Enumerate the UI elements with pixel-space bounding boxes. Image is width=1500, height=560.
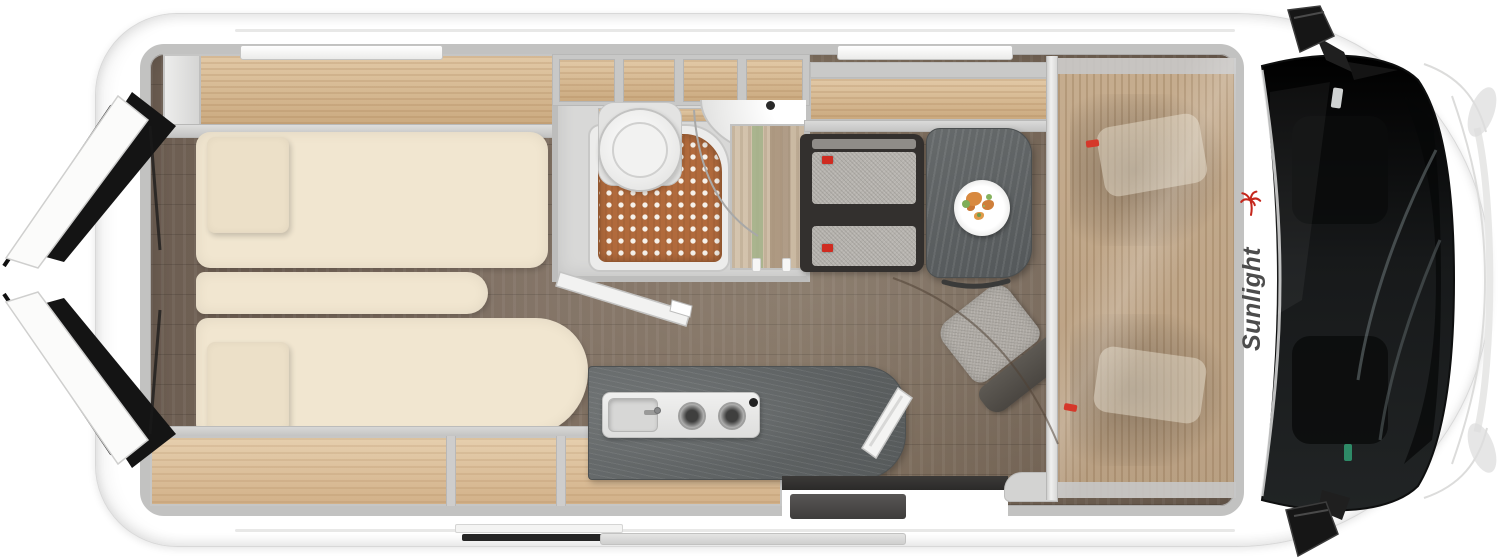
- food-garnish: [962, 200, 970, 208]
- bed-center-cushion: [196, 272, 488, 314]
- floorplan-stage: Sunlight: [0, 0, 1500, 560]
- seatbelt-buckle: [822, 244, 833, 252]
- sideboard-divider: [446, 436, 456, 506]
- overhead-shelf-end-cap: [165, 56, 201, 124]
- exterior-sill-trim: [462, 534, 620, 541]
- roof-window-strip-left: [240, 45, 443, 60]
- roof-seam-bottom: [235, 529, 1235, 532]
- headlight: [1462, 419, 1500, 476]
- headlight: [1462, 83, 1500, 140]
- overhead-shelf-rear-top: [163, 54, 587, 126]
- palm-tree-icon: [1239, 190, 1263, 216]
- pillow-top-bed: [207, 137, 289, 233]
- kitchen-sink: [608, 398, 658, 432]
- cab-overlay-reflection: [1058, 58, 1236, 498]
- exterior-sill: [455, 524, 623, 533]
- roof-window-strip-right: [837, 45, 1013, 60]
- bench-headrest: [812, 139, 916, 149]
- entry-step: [790, 494, 906, 519]
- food-plate: [954, 180, 1010, 236]
- cab-divider-wall: [1046, 56, 1058, 500]
- cabinet-compartment: [683, 59, 738, 102]
- cabinet-compartment: [746, 59, 803, 102]
- washbasin-faucet: [766, 101, 775, 110]
- stove-burner-right: [718, 402, 746, 430]
- entry-exterior-step: [600, 533, 906, 545]
- dinette-overhead-cabinet-top: [810, 62, 1054, 78]
- entry-threshold: [782, 476, 1008, 490]
- dinette-overhead-cabinet: [810, 78, 1054, 120]
- wardrobe: [730, 124, 806, 270]
- kitchen-faucet-base: [654, 407, 661, 414]
- seatbelt-buckle: [822, 156, 833, 164]
- stove-burner-left: [678, 402, 706, 430]
- toilet-lid: [612, 122, 668, 178]
- brand-logo-text: Sunlight: [1238, 247, 1267, 351]
- cabinet-compartment: [559, 59, 615, 102]
- cabinet-compartment: [623, 59, 675, 102]
- pillow-bottom-bed: [207, 342, 289, 432]
- stove-knob: [749, 398, 758, 407]
- wardrobe-hook: [752, 258, 761, 272]
- roof-seam-top: [235, 29, 1235, 32]
- wardrobe-hook: [782, 258, 791, 272]
- sideboard-divider: [556, 436, 566, 506]
- brand-logo: Sunlight: [1239, 215, 1265, 383]
